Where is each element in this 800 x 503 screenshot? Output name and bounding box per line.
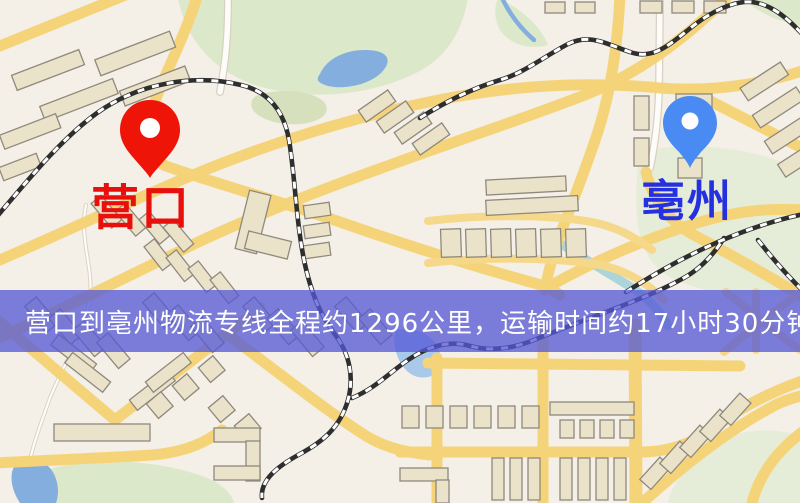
destination-city-label: 亳州 [641, 176, 733, 227]
route-info-text: 营口到亳州物流专线全程约1296公里，运输时间约17小时30分钟. [0, 303, 800, 340]
map-canvas: 营口 亳州 [0, 0, 800, 503]
origin-city-label: 营口 [91, 180, 191, 236]
map-screenshot: 营口 亳州 营口到亳州物流专线全程约1296公里，运输时间约17小时30分钟. [0, 0, 800, 503]
route-info-banner: 营口到亳州物流专线全程约1296公里，运输时间约17小时30分钟. [0, 290, 800, 352]
